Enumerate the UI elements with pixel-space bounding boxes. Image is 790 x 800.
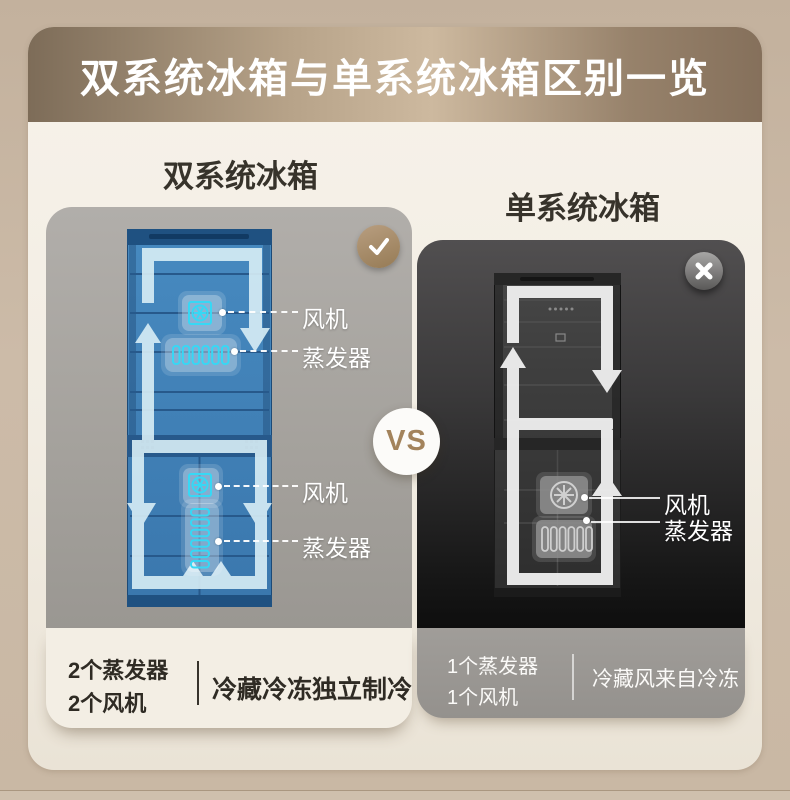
single-system-heading: 单系统冰箱 [505, 183, 660, 228]
evaporator-label: 蒸发器 [664, 512, 733, 546]
callout-dot [219, 309, 226, 316]
callout-dot [231, 348, 238, 355]
fan-label: 风机 [302, 474, 348, 508]
evaporator-count: 2个蒸发器 [68, 653, 168, 685]
callout-line [228, 311, 298, 313]
evaporator-label: 蒸发器 [302, 339, 371, 373]
callout-dot [215, 483, 222, 490]
cross-badge [685, 252, 723, 290]
cross-icon [694, 261, 714, 281]
evaporator-icon [161, 334, 241, 376]
evaporator-count: 1个蒸发器 [447, 650, 538, 679]
fan-label: 风机 [302, 300, 348, 334]
dual-system-heading: 双系统冰箱 [163, 151, 318, 196]
fan-count: 1个风机 [447, 681, 518, 710]
callout-line [224, 485, 298, 487]
fan-count: 2个风机 [68, 686, 146, 718]
callout-dot [583, 517, 590, 524]
callout-line [589, 497, 660, 499]
single-system-footer: 1个蒸发器 1个风机 冷藏风来自冷冻 [417, 628, 745, 718]
footer-divider [572, 654, 574, 700]
title-banner: 双系统冰箱与单系统冰箱区别一览 [28, 27, 762, 122]
fridge-base [494, 588, 621, 597]
check-badge [357, 225, 400, 268]
fridge-base [127, 595, 272, 607]
check-icon [366, 234, 392, 260]
callout-dot [581, 494, 588, 501]
infographic-page: { "banner": { "title": "双系统冰箱与单系统冰箱区别一览"… [0, 0, 790, 800]
vs-badge: VS [373, 408, 440, 475]
vs-label: VS [386, 425, 427, 458]
callout-line [240, 350, 298, 352]
callout-line [224, 540, 298, 542]
dual-system-footer: 2个蒸发器 2个风机 冷藏冷冻独立制冷 [46, 628, 412, 728]
callout-line [591, 521, 660, 523]
single-system-description: 冷藏风来自冷冻 [592, 663, 739, 693]
callout-dot [215, 538, 222, 545]
footer-divider [197, 661, 199, 705]
evaporator-label: 蒸发器 [302, 529, 371, 563]
page-title: 双系统冰箱与单系统冰箱区别一览 [80, 46, 710, 104]
dual-system-fridge-illustration [127, 229, 272, 607]
single-system-fridge-illustration [492, 271, 623, 598]
bottom-strip [0, 791, 790, 800]
dual-system-description: 冷藏冷冻独立制冷 [212, 670, 412, 706]
